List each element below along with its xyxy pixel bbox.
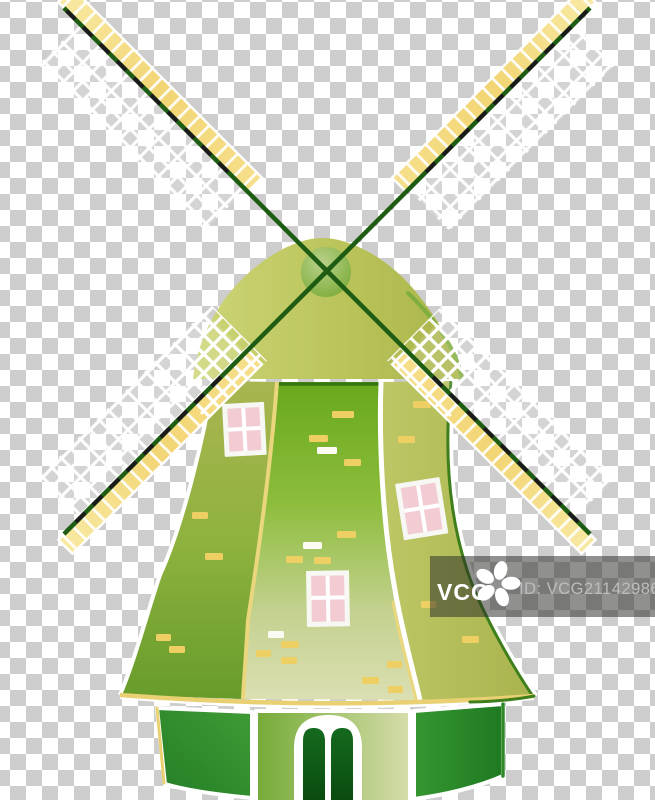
brick-dash <box>398 436 415 443</box>
brick-dash <box>303 542 322 549</box>
door-left-panel <box>303 728 325 800</box>
brick-dash <box>337 531 356 538</box>
brick-dash <box>256 650 271 657</box>
brick-dash <box>205 553 223 560</box>
brick-dash <box>281 641 299 648</box>
brick-dash <box>317 447 337 454</box>
window-muntin-h <box>311 595 344 600</box>
brick-dash <box>309 435 328 442</box>
brick-dash <box>344 459 361 466</box>
watermark-badge: VCG ID: VCG211429868026 <box>430 556 655 617</box>
windmill-base <box>157 704 503 800</box>
windmill-illustration: VCG ID: VCG211429868026 <box>0 0 655 800</box>
brick-dash <box>192 512 208 519</box>
base-left-panel <box>157 708 252 798</box>
brick-dash <box>281 657 297 664</box>
brick-dash <box>332 411 354 418</box>
brick-dash <box>362 677 379 684</box>
brick-dash <box>286 556 303 563</box>
window-upper-left <box>222 402 267 457</box>
brick-dash <box>169 646 185 653</box>
base-right-panel <box>414 704 503 799</box>
brick-dash <box>387 661 402 668</box>
window-lower-center <box>306 570 350 627</box>
door-right-panel <box>331 728 353 800</box>
watermark-id: ID: VCG211429868026 <box>519 580 655 598</box>
door <box>294 715 362 800</box>
window-mid-right <box>395 477 448 540</box>
brick-dash <box>314 557 331 564</box>
brick-dash <box>156 634 171 641</box>
transparency-checkerboard-canvas: VCG ID: VCG211429868026 <box>0 0 655 800</box>
brick-dash <box>388 686 403 693</box>
brick-dash <box>268 631 284 638</box>
brick-dash <box>462 636 479 643</box>
